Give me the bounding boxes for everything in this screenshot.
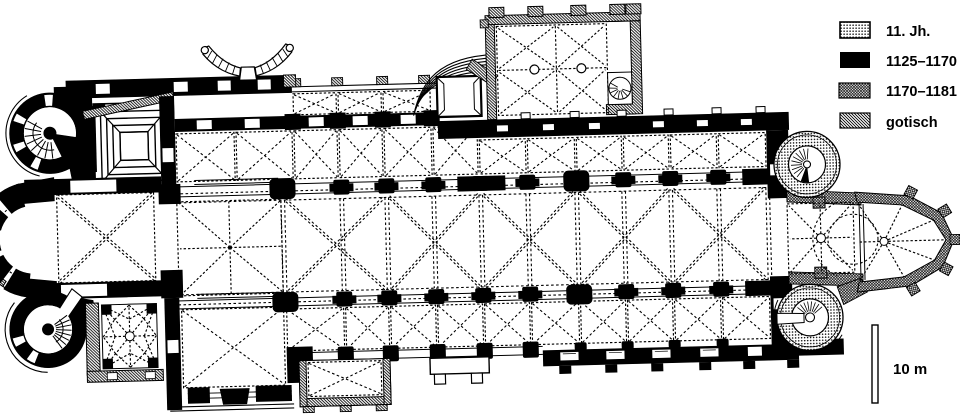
- svg-text:1125–1170: 1125–1170: [886, 54, 957, 70]
- svg-text:11. Jh.: 11. Jh.: [886, 24, 930, 40]
- svg-text:1170–1181: 1170–1181: [886, 84, 957, 100]
- svg-text:10 m: 10 m: [893, 361, 927, 378]
- svg-text:gotisch: gotisch: [886, 115, 938, 131]
